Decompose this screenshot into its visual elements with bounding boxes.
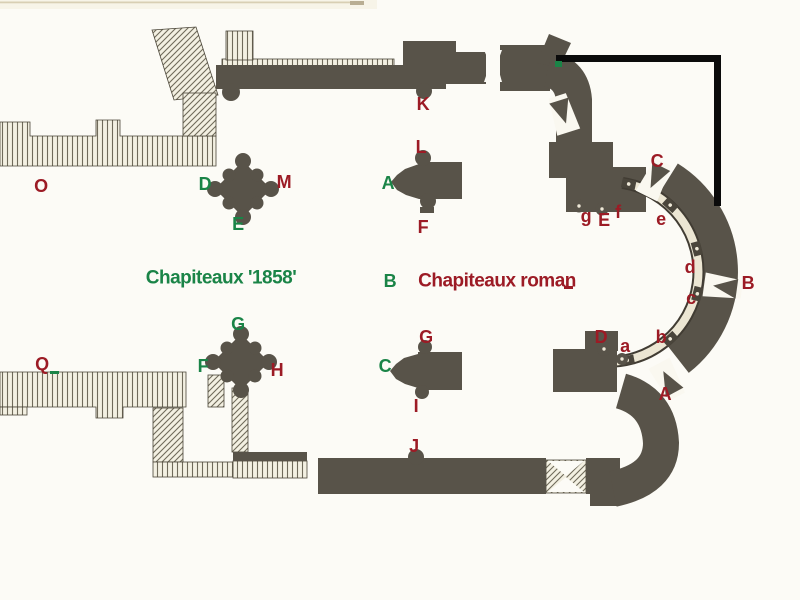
marker-roman-C-apse: C (651, 152, 664, 170)
marker-roman-B-apse: B (742, 274, 755, 292)
marker-1858-F: F (198, 357, 209, 375)
marker-roman-E-apse: E (598, 211, 610, 229)
marker-roman-A-apse: A (659, 385, 672, 403)
marker-roman-D-apse: D (595, 328, 608, 346)
marker-roman-e-apse: e (656, 210, 666, 228)
marker-roman-f-apse: f (615, 203, 621, 221)
north-connector-wall (183, 93, 216, 136)
legend-chapiteaux-1858: Chapiteaux '1858' (146, 269, 297, 288)
marker-roman-b-apse: b (656, 328, 667, 346)
south-transept-wall-vertical (153, 408, 183, 462)
scan-edge-strip (0, 0, 377, 9)
marker-1858-E: E (232, 215, 244, 233)
marker-roman-G: G (419, 328, 433, 346)
pillar-cross-north (391, 150, 462, 213)
south-pillar-side-block (208, 375, 224, 407)
hatched-walls (0, 27, 586, 493)
south-wall-hatch-segment (233, 461, 307, 478)
marker-1858-B: B (384, 272, 397, 290)
top-buttress-dark (403, 41, 456, 65)
south-wall-stub (590, 494, 618, 506)
marker-1858-G: G (231, 315, 245, 333)
marker-roman-L: L (416, 138, 427, 156)
southeast-corner-curve (613, 391, 661, 489)
legend-chapiteaux-roman: Chapiteaux roman (418, 272, 576, 291)
floor-plan-drawing (0, 0, 800, 600)
marker-1858-D: D (199, 175, 212, 193)
south-wall-step (0, 407, 27, 415)
marker-1858-C: C (379, 357, 392, 375)
marker-roman-Q: Q (35, 355, 49, 373)
marker-roman-J: J (409, 437, 419, 455)
marker-roman-g-apse: g (581, 207, 592, 225)
marker-roman-I: I (414, 397, 419, 415)
church-floor-plan-image: Chapiteaux '1858' Chapiteaux roman D E A… (0, 0, 800, 600)
marker-roman-O: O (34, 177, 48, 195)
south-choir-pier (553, 200, 628, 393)
marker-roman-H: H (271, 361, 284, 379)
south-wall-main (318, 458, 546, 494)
pillar-cross-south (390, 340, 462, 399)
marker-1858-A: A (382, 174, 395, 192)
top-buttress (226, 31, 253, 60)
green-dash-near-Q (50, 371, 59, 374)
marker-roman-d-apse: d (685, 258, 696, 276)
marker-roman-K: K (417, 95, 430, 113)
top-wall-window (484, 50, 502, 82)
north-diagonal-buttress (152, 27, 218, 100)
marker-roman-F: F (418, 218, 429, 236)
marker-roman-c-apse: c (686, 289, 696, 307)
top-wall (216, 65, 446, 89)
marker-roman-M: M (277, 173, 292, 191)
south-wall-dark-edge (233, 452, 307, 461)
green-tick-top (555, 61, 562, 67)
top-wall-respond-west (222, 83, 240, 101)
marker-roman-a-apse: a (620, 337, 630, 355)
